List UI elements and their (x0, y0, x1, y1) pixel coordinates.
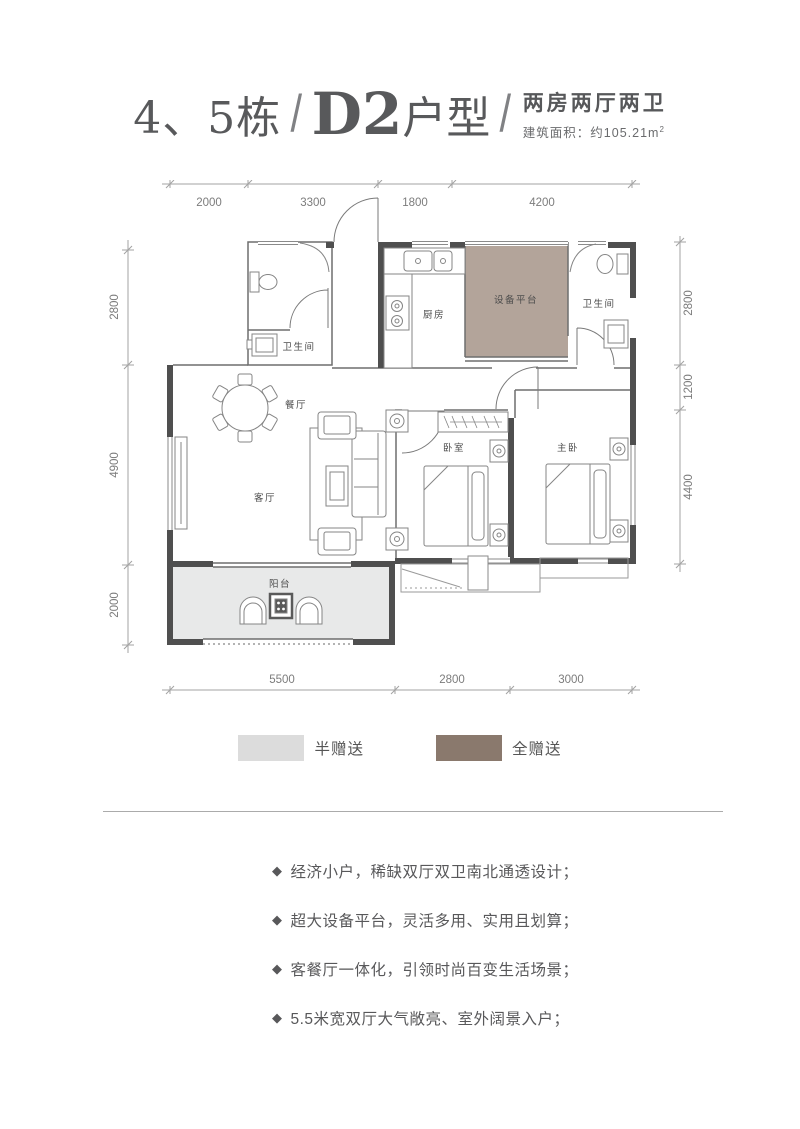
feature-text: 5.5米宽双厅大气敞亮、室外阔景入户； (291, 1007, 570, 1029)
legend-swatch-half-gift (238, 735, 304, 761)
area-value: 105.21 (604, 126, 648, 140)
room-label-bedroom: 卧室 (443, 442, 465, 454)
dim-left-2: 4900 (109, 452, 121, 478)
diamond-bullet-icon: ◆ (272, 863, 283, 879)
floor-plan-svg: 2000 3300 1800 4200 2800 4900 2000 2800 … (100, 180, 700, 715)
dim-right-3: 4400 (683, 474, 695, 500)
feature-list: ◆ 经济小户，稀缺双厅双卫南北通透设计； ◆ 超大设备平台，灵活多用、实用且划算… (272, 860, 579, 1056)
unit-type-label: 户型 (402, 82, 490, 146)
hallway-door (496, 367, 538, 409)
built-area: 建筑面积：约105.21m2 (523, 122, 667, 141)
shower-corner-left (300, 243, 329, 272)
room-label-kitchen: 厨房 (423, 309, 445, 321)
feature-text: 客餐厅一体化，引领时尚百变生活场景； (291, 958, 579, 980)
legend-label-half-gift: 半赠送 (314, 737, 364, 759)
dim-bottom-2: 2800 (439, 674, 465, 686)
building-number: 4、5栋 (133, 82, 281, 146)
area-prefix: 建筑面积：约 (523, 126, 604, 140)
diamond-bullet-icon: ◆ (272, 961, 283, 977)
layout-type: 两房两厅两卫 (523, 87, 667, 117)
dim-top-3: 1800 (402, 197, 428, 209)
dim-top-1: 2000 (196, 197, 222, 209)
dim-top-2: 3300 (300, 197, 326, 209)
area-unit: m (648, 126, 659, 140)
legend-label-full-gift: 全赠送 (512, 737, 562, 759)
room-label-bath-right: 卫生间 (582, 298, 615, 310)
feature-item: ◆ 经济小户，稀缺双厅双卫南北通透设计； (272, 860, 579, 882)
legend-swatch-full-gift (436, 735, 502, 761)
unit-code: D2 (312, 80, 403, 148)
section-divider (103, 811, 723, 812)
toilet-bowl-left (259, 275, 277, 290)
diamond-bullet-icon: ◆ (272, 1010, 283, 1026)
feature-text: 超大设备平台，灵活多用、实用且划算； (291, 909, 579, 931)
feature-item: ◆ 客餐厅一体化，引领时尚百变生活场景； (272, 958, 579, 980)
room-label-bath-left: 卫生间 (282, 341, 315, 353)
area-superscript: 2 (659, 125, 664, 134)
dim-right-1: 2800 (683, 290, 695, 316)
entry-door (334, 198, 378, 242)
dim-top-4: 4200 (529, 197, 555, 209)
feature-item: ◆ 超大设备平台，灵活多用、实用且划算； (272, 909, 579, 931)
sofa-set (310, 410, 408, 555)
feature-item: ◆ 5.5米宽双厅大气敞亮、室外阔景入户； (272, 1007, 579, 1029)
room-label-dining: 餐厅 (285, 399, 307, 411)
dim-bottom-1: 5500 (269, 674, 295, 686)
room-label-equipment: 设备平台 (494, 294, 538, 306)
room-label-living: 客厅 (254, 492, 276, 504)
room-label-master: 主卧 (557, 442, 579, 454)
dining-table-set (212, 374, 278, 442)
legend: 半赠送 全赠送 (0, 735, 800, 761)
page-title: 4、5栋 / D2 户型 / 两房两厅两卫 建筑面积：约105.21m2 (0, 80, 800, 148)
bath-left-door (290, 288, 328, 328)
floor-plan: 2000 3300 1800 4200 2800 4900 2000 2800 … (100, 180, 700, 715)
toilet-tank-left (250, 272, 259, 292)
slash-separator-2: / (500, 84, 512, 144)
diamond-bullet-icon: ◆ (272, 912, 283, 928)
dim-left-1: 2800 (109, 294, 121, 320)
shower-corner-right (570, 244, 596, 272)
bed-bedroom (424, 440, 508, 546)
toilet-tank-right (617, 254, 628, 274)
flyer-page: 4、5栋 / D2 户型 / 两房两厅两卫 建筑面积：约105.21m2 (0, 0, 800, 1129)
feature-text: 经济小户，稀缺双厅双卫南北通透设计； (291, 860, 579, 882)
title-right-block: 两房两厅两卫 建筑面积：约105.21m2 (523, 87, 667, 141)
dim-bottom-3: 3000 (558, 674, 584, 686)
wardrobe (438, 412, 508, 432)
toilet-bowl-right (597, 255, 613, 274)
dim-left-3: 2000 (109, 592, 121, 618)
dim-right-2: 1200 (683, 374, 695, 400)
room-label-balcony: 阳台 (269, 578, 291, 590)
slash-separator: / (291, 84, 303, 144)
